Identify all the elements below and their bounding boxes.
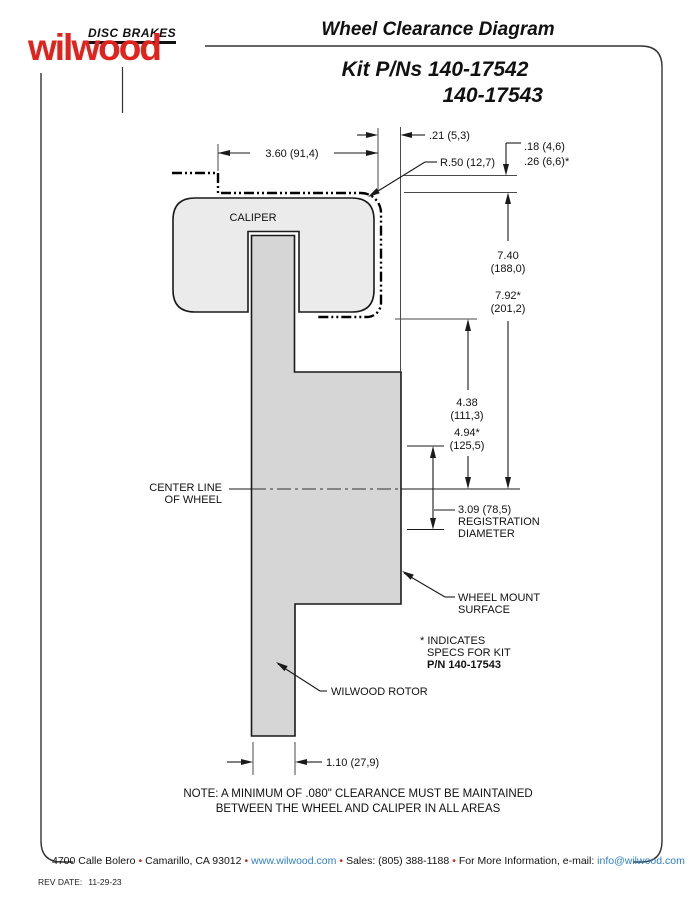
leader-wheel-mount-diag [404,573,445,597]
footer-bullet-3: • [339,855,343,867]
arrow-reg-down [430,518,436,530]
drawing-sheet: 3.60 (91,4) .21 (5,3) R.50 (12,7) .18 (4… [0,0,700,906]
dim-text-21: .21 (5,3) [429,130,470,142]
arrow-110-right [295,759,307,765]
dim-text-r50: R.50 (12,7) [440,157,495,169]
footer-info-label: For More Information, e-mail: [459,855,594,867]
label-spec-note-3: P/N 140-17543 [427,659,501,671]
label-reg-1: 3.09 (78,5) [458,504,511,516]
dim-text-360: 3.60 (91,4) [265,148,318,160]
footer-sales-phone: Sales: (805) 388-1188 [346,855,449,867]
arrow-360-left [218,150,230,156]
label-wheel-mount-2: SURFACE [458,604,510,616]
dim-text-792b: (201,2) [491,303,526,315]
clearance-note-line1: NOTE: A MINIMUM OF .080" CLEARANCE MUST … [108,787,608,802]
page-title: Wheel Clearance Diagram [288,19,588,41]
rev-date-value: 11-29-23 [88,877,121,887]
arrow-21-left [366,132,378,138]
rev-date: REV DATE:11-29-23 [38,877,128,887]
label-spec-note-1: * INDICATES [420,635,485,647]
dim-text-740a: 7.40 [497,250,518,262]
arrow-18-down [503,164,509,176]
arrow-740-down [505,477,511,489]
arrow-110-left [241,759,253,765]
footer-email-link[interactable]: info@wilwood.com [597,855,685,867]
dim-text-110: 1.10 (27,9) [326,757,379,769]
label-centerline-2: OF WHEEL [165,494,222,506]
kit-part-number-2: 140-17543 [285,84,543,108]
footer-contact-line: 4700 Calle Bolero•Camarillo, CA 93012•ww… [52,855,652,867]
border-left-bottom [41,73,73,862]
wilwood-logo: wilwood [28,29,160,66]
label-caliper: CALIPER [229,212,276,224]
label-reg-3: DIAMETER [458,528,515,540]
clearance-note: NOTE: A MINIMUM OF .080" CLEARANCE MUST … [108,787,608,817]
label-wheel-mount-1: WHEEL MOUNT [458,592,540,604]
footer-city: Camarillo, CA 93012 [145,855,241,867]
clearance-note-line2: BETWEEN THE WHEEL AND CALIPER IN ALL ARE… [108,802,608,817]
arrow-438-up [465,319,471,331]
kit-part-number-1: Kit P/Ns 140-17542 [285,58,585,82]
arrow-740-up [505,193,511,205]
footer-bullet-1: • [138,855,142,867]
arrow-438-down [465,477,471,489]
dim-text-494a: 4.94* [454,427,480,439]
footer-website-link[interactable]: www.wilwood.com [251,855,336,867]
footer-bullet-2: • [244,855,248,867]
label-spec-note-2: SPECS FOR KIT [427,647,511,659]
dim-text-494b: (125,5) [450,440,485,452]
arrow-360-right [366,150,378,156]
arrow-21-right [401,132,413,138]
dim-text-792a: 7.92* [495,290,521,302]
dim-text-26: .26 (6,6)* [524,156,570,168]
footer-address: 4700 Calle Bolero [52,855,135,867]
label-rotor: WILWOOD ROTOR [331,686,428,698]
arrow-reg-up [430,446,436,458]
rev-date-label: REV DATE: [38,877,82,887]
dim-text-438b: (111,3) [450,410,483,422]
clearance-diagram-svg: 3.60 (91,4) .21 (5,3) R.50 (12,7) .18 (4… [0,0,700,906]
dim-text-18: .18 (4,6) [524,141,565,153]
dim-text-438a: 4.38 [456,397,477,409]
label-reg-2: REGISTRATION [458,516,540,528]
label-centerline-1: CENTER LINE [149,482,222,494]
dim-text-740b: (188,0) [491,263,526,275]
footer-bullet-4: • [452,855,456,867]
